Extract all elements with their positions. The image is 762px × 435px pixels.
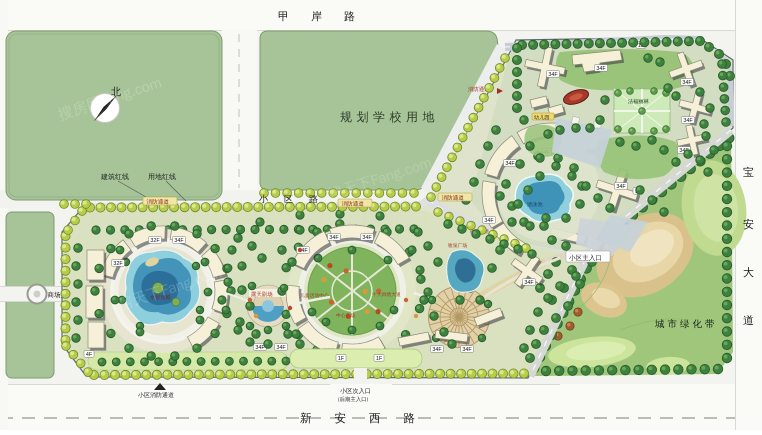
svg-text:34F: 34F: [505, 161, 515, 167]
svg-text:34F: 34F: [276, 345, 286, 351]
svg-text:32F: 32F: [113, 261, 123, 267]
svg-text:32F: 32F: [150, 238, 160, 244]
svg-text:34F: 34F: [174, 238, 184, 244]
svg-text:34F: 34F: [616, 184, 626, 190]
svg-text:34F: 34F: [596, 66, 606, 72]
svg-text:34F: 34F: [484, 218, 494, 224]
svg-text:34F: 34F: [548, 72, 558, 78]
svg-text:34F: 34F: [362, 235, 372, 241]
svg-text:4F: 4F: [86, 352, 93, 358]
svg-text:1F: 1F: [338, 356, 345, 362]
svg-text:34F: 34F: [329, 235, 339, 241]
svg-text:34F: 34F: [683, 118, 693, 124]
svg-text:34F: 34F: [524, 280, 534, 286]
svg-text:34F: 34F: [432, 347, 442, 353]
svg-text:1F: 1F: [376, 356, 383, 362]
svg-text:34F: 34F: [462, 347, 472, 353]
svg-text:34F: 34F: [682, 80, 692, 86]
